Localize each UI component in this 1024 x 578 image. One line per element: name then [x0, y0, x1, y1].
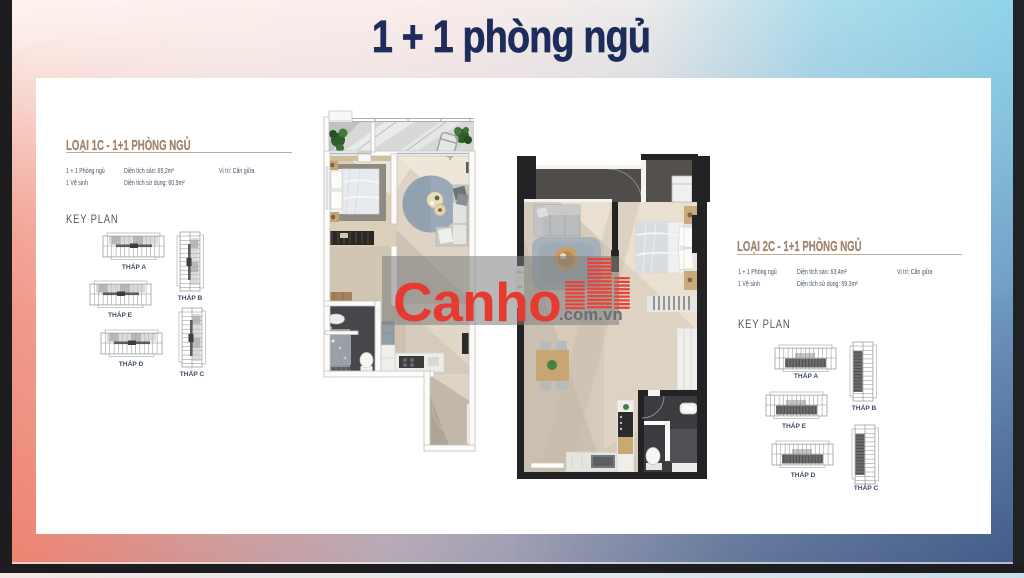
svg-text:THÁP D: THÁP D	[791, 470, 816, 479]
svg-text:THÁP E: THÁP E	[108, 310, 133, 319]
svg-text:THÁP A: THÁP A	[122, 262, 146, 271]
svg-text:THÁP A: THÁP A	[794, 371, 818, 380]
svg-text:THÁP E: THÁP E	[782, 421, 807, 430]
svg-text:THÁP B: THÁP B	[178, 293, 203, 302]
svg-text:THÁP C: THÁP C	[854, 483, 879, 492]
svg-text:THÁP C: THÁP C	[180, 369, 205, 378]
svg-text:THÁP B: THÁP B	[852, 403, 877, 412]
svg-text:THÁP D: THÁP D	[119, 359, 144, 368]
